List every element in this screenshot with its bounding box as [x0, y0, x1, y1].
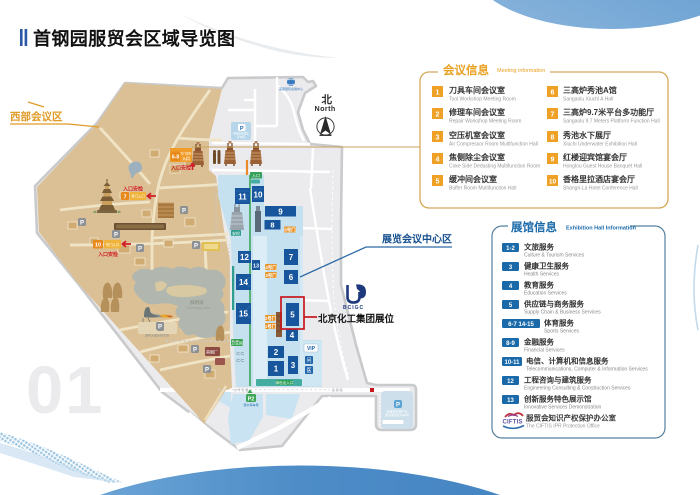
svg-text:观众停车场: 观众停车场	[243, 402, 258, 407]
svg-text:空压机室会议室: 空压机室会议室	[449, 130, 505, 140]
svg-text:首钢园服贸会区域导览图: 首钢园服贸会区域导览图	[33, 28, 235, 49]
svg-text:供应链与商务服务: 供应链与商务服务	[523, 299, 584, 309]
svg-text:Sangaolu 9.7 Meters Platform F: Sangaolu 9.7 Meters Platform Function Ha…	[563, 119, 660, 125]
svg-text:Education Services: Education Services	[524, 291, 567, 297]
svg-text:2号门: 2号门	[265, 315, 277, 322]
svg-text:5: 5	[436, 179, 440, 186]
svg-text:Qunming Lake: Qunming Lake	[187, 306, 210, 310]
svg-text:入口安检: 入口安检	[171, 165, 191, 172]
svg-text:Xiuchi Underwater Exhibition H: Xiuchi Underwater Exhibition Hall	[563, 142, 637, 148]
svg-text:刀具车间会议室: 刀具车间会议室	[449, 85, 505, 95]
svg-text:展览会议中心区: 展览会议中心区	[382, 233, 452, 246]
svg-text:VIP: VIP	[307, 346, 316, 352]
svg-text:Air Compressor Room Multifunct: Air Compressor Room Multifunction Hall	[449, 142, 538, 148]
svg-text:Telecommunications, Computer &: Telecommunications, Computer & Informati…	[526, 367, 648, 373]
svg-text:Innovative Services Demonstrat: Innovative Services Demonstration	[524, 405, 601, 411]
svg-text:西部会议区: 西部会议区	[10, 110, 63, 123]
svg-text:The CIFTIS IPR Protection Offi: The CIFTIS IPR Protection Office	[526, 424, 600, 430]
svg-text:P2: P2	[248, 397, 255, 403]
svg-text:Health Services: Health Services	[524, 272, 560, 278]
svg-text:Supply Chain & Business Servic: Supply Chain & Business Services	[524, 310, 601, 316]
svg-text:Sangaolu Xiuchi A Hall: Sangaolu Xiuchi A Hall	[563, 97, 613, 103]
svg-text:健康卫生服务: 健康卫生服务	[524, 261, 569, 271]
svg-text:P: P	[193, 348, 197, 354]
svg-text:群明湖: 群明湖	[190, 299, 204, 306]
svg-text:7: 7	[123, 194, 126, 200]
svg-text:金融服务: 金融服务	[523, 337, 554, 347]
svg-text:Engineering Consulting & Const: Engineering Consulting & Construction Se…	[524, 386, 631, 392]
svg-text:红楼迎宾馆宴会厅: 红楼迎宾馆宴会厅	[563, 152, 627, 162]
svg-text:号门入口: 号门入口	[106, 242, 120, 247]
svg-text:焦侧除尘会议室: 焦侧除尘会议室	[448, 152, 505, 162]
svg-text:9: 9	[278, 208, 283, 217]
svg-text:6: 6	[551, 90, 555, 97]
svg-text:P: P	[158, 325, 162, 331]
svg-text:Culture & Tourism Services: Culture & Tourism Services	[524, 253, 585, 259]
svg-text:服贸会知识产权保护办公室: 服贸会知识产权保护办公室	[526, 413, 616, 423]
svg-text:滑雪大跳台停车场: 滑雪大跳台停车场	[145, 333, 169, 338]
svg-text:1号门: 1号门	[265, 323, 277, 330]
svg-text:5: 5	[290, 311, 295, 320]
svg-text:13: 13	[253, 264, 259, 270]
svg-text:医: 医	[306, 368, 311, 374]
svg-text:号门入口: 号门入口	[131, 194, 145, 199]
svg-text:13: 13	[507, 398, 514, 404]
svg-text:入口: 入口	[252, 173, 260, 178]
svg-text:8: 8	[551, 135, 555, 142]
svg-text:· 首 钢 路 ·: · 首 钢 路 ·	[330, 387, 344, 392]
svg-text:4: 4	[290, 331, 295, 340]
svg-text:8-9: 8-9	[506, 341, 515, 347]
svg-text:入口: 入口	[181, 156, 190, 161]
svg-text:6-8: 6-8	[172, 155, 179, 161]
svg-text:Coke Side Dedusting Multifunct: Coke Side Dedusting Multifunction Room	[449, 164, 540, 170]
svg-text:P: P	[182, 209, 186, 215]
svg-text:工程咨询与建筑服务: 工程咨询与建筑服务	[524, 375, 592, 385]
svg-text:Repair Workshop Meeting Room: Repair Workshop Meeting Room	[449, 119, 521, 125]
svg-text:停车场: 停车场	[237, 135, 245, 139]
svg-text:2: 2	[436, 112, 440, 119]
svg-text:12: 12	[240, 253, 249, 262]
svg-text:CIFTIS: CIFTIS	[503, 420, 523, 426]
svg-text:North: North	[315, 104, 336, 113]
svg-text:P: P	[114, 233, 118, 239]
svg-text:6-7 14-15: 6-7 14-15	[508, 322, 534, 328]
svg-text:2: 2	[274, 348, 279, 357]
svg-text:1: 1	[274, 365, 279, 374]
svg-text:Buffer Room Multifunction Hall: Buffer Room Multifunction Hall	[449, 186, 516, 192]
svg-text:3: 3	[291, 361, 296, 370]
svg-text:7: 7	[551, 112, 555, 119]
svg-text:4号门: 4号门	[265, 264, 277, 271]
svg-text:1: 1	[436, 90, 440, 97]
svg-text:· 北 辛 安 路 ·: · 北 辛 安 路 ·	[232, 387, 250, 392]
svg-text:10: 10	[549, 179, 557, 186]
svg-text:P: P	[194, 244, 198, 250]
svg-text:9: 9	[551, 157, 555, 164]
svg-text:绿色出入口: 绿色出入口	[276, 380, 294, 385]
svg-text:安检: 安检	[232, 230, 240, 236]
svg-text:修理车间会议室: 修理车间会议室	[448, 107, 505, 117]
svg-text:电信、计算机和信息服务: 电信、计算机和信息服务	[526, 356, 609, 366]
svg-text:秀池水下展厅: 秀池水下展厅	[562, 130, 611, 140]
svg-text:Meeting information: Meeting information	[497, 68, 545, 74]
svg-text:14: 14	[239, 278, 248, 287]
svg-text:10: 10	[254, 191, 263, 200]
svg-text:10: 10	[95, 243, 101, 249]
svg-text:11: 11	[238, 193, 247, 202]
svg-text:号门安检: 号门安检	[180, 152, 191, 156]
svg-text:Financial Services: Financial Services	[524, 348, 565, 354]
svg-text:三高炉秀池A馆: 三高炉秀池A馆	[563, 85, 617, 95]
svg-text:1-2: 1-2	[506, 246, 515, 252]
svg-text:Honglou Guest House Banquet Ha: Honglou Guest House Banquet Hall	[563, 164, 642, 170]
svg-text:入口安检: 入口安检	[98, 251, 118, 258]
svg-text:三高炉9.7米平台多功能厅: 三高炉9.7米平台多功能厅	[563, 107, 654, 117]
svg-text:北京化工集团展位: 北京化工集团展位	[318, 313, 395, 325]
svg-text:首钢厂: 首钢厂	[206, 349, 218, 355]
svg-text:Tool Workshop Meeting Room: Tool Workshop Meeting Room	[449, 97, 516, 103]
svg-text:5号门: 5号门	[284, 226, 296, 233]
svg-text:会议信息: 会议信息	[442, 63, 489, 77]
svg-text:Sports Services: Sports Services	[544, 329, 580, 335]
svg-text:入口安检: 入口安检	[123, 186, 143, 193]
svg-text:3号门: 3号门	[265, 272, 277, 279]
svg-text:P: P	[205, 368, 209, 374]
svg-text:教育服务: 教育服务	[523, 280, 554, 290]
svg-text:15: 15	[239, 310, 248, 319]
svg-text:8: 8	[270, 221, 274, 230]
svg-text:Exhibition Hall Information: Exhibition Hall Information	[566, 226, 637, 232]
svg-text:BCIGC: BCIGC	[343, 305, 364, 311]
svg-text:问: 问	[306, 357, 311, 364]
svg-text:3: 3	[436, 135, 440, 142]
svg-text:缓冲间会议室: 缓冲间会议室	[449, 174, 497, 184]
svg-text:展馆信息: 展馆信息	[510, 220, 557, 234]
svg-text:01: 01	[26, 353, 105, 428]
svg-text:体育服务: 体育服务	[544, 318, 574, 328]
svg-text:7: 7	[289, 253, 294, 262]
svg-text:创新服务特色展示馆: 创新服务特色展示馆	[523, 394, 592, 404]
svg-text:文旅服务: 文旅服务	[524, 242, 554, 252]
svg-text:首钢国际会展中心: 首钢国际会展中心	[279, 86, 303, 91]
svg-text:6: 6	[289, 273, 294, 282]
svg-text:P: P	[240, 126, 244, 132]
svg-text:P: P	[80, 221, 84, 227]
svg-text:4: 4	[436, 157, 440, 164]
svg-text:⊂⊂: ⊂⊂	[236, 358, 244, 364]
svg-text:P: P	[396, 403, 400, 409]
svg-text:12: 12	[507, 379, 514, 385]
svg-text:Shangri-La Hotel Conference Ha: Shangri-La Hotel Conference Hall	[563, 186, 638, 192]
svg-text:综合服务区停车场: 综合服务区停车场	[385, 412, 409, 417]
svg-text:⊂⊂: ⊂⊂	[236, 351, 244, 357]
svg-text:10-11: 10-11	[504, 360, 520, 366]
svg-text:香格里拉酒店宴会厅: 香格里拉酒店宴会厅	[562, 174, 635, 184]
svg-text:P: P	[138, 247, 142, 253]
